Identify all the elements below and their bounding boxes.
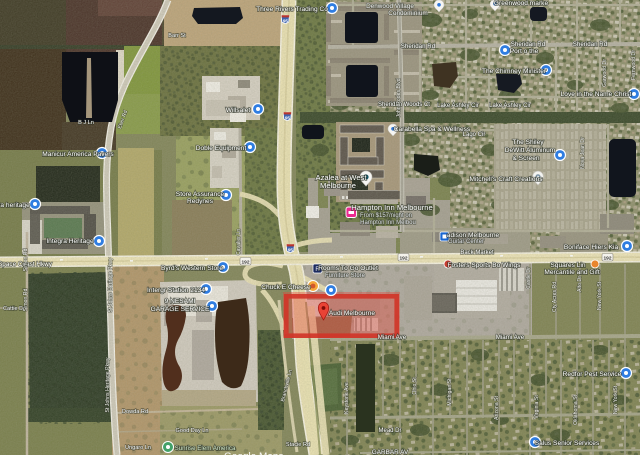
svg-text:Virginia St: Virginia St (534, 395, 540, 419)
svg-text:DeWitt Aluminum: DeWitt Aluminum (505, 147, 556, 154)
svg-text:Greenwood marke: Greenwood marke (494, 0, 549, 7)
svg-text:95: 95 (285, 115, 291, 120)
svg-text:192: 192 (241, 259, 249, 265)
svg-text:Hampton Inn Melbourne: Hampton Inn Melbourne (351, 203, 432, 212)
svg-text:Castle Dr: Castle Dr (526, 267, 532, 289)
svg-text:Arizona St: Arizona St (494, 395, 500, 419)
svg-text:Salus Senior Services: Salus Senior Services (535, 440, 600, 447)
svg-text:192: 192 (399, 255, 407, 261)
svg-text:Carabella Spa & Wellness: Carabella Spa & Wellness (394, 126, 471, 133)
svg-text:Ohio St: Ohio St (412, 377, 418, 395)
svg-text:Sheridan Rd: Sheridan Rd (401, 43, 436, 50)
svg-text:Sheridan Woods Ct: Sheridan Woods Ct (378, 102, 430, 108)
svg-text:Lake Ashley Cir: Lake Ashley Cir (437, 103, 479, 109)
svg-text:Google Maps: Google Maps (224, 452, 283, 455)
svg-text:St Johns Heritage Pkwy: St Johns Heritage Pkwy (105, 357, 111, 412)
svg-text:Nova Jean Dr: Nova Jean Dr (580, 137, 586, 169)
svg-text:Willsalet: Willsalet (226, 107, 251, 114)
svg-text:GARAGE SERVICE: GARAGE SERVICE (151, 306, 210, 313)
svg-text:Integra Heritage: Integra Heritage (46, 238, 94, 245)
svg-text:Ungaro Ln: Ungaro Ln (125, 445, 151, 451)
svg-text:Back Market: Back Market (460, 250, 494, 256)
svg-text:New York St: New York St (613, 385, 619, 414)
svg-text:Fernwood Dr: Fernwood Dr (631, 50, 637, 80)
svg-text:Audi Melbourne: Audi Melbourne (329, 310, 376, 317)
svg-text:Stacie Rd: Stacie Rd (286, 442, 310, 448)
svg-text:The Shiley: The Shiley (512, 139, 544, 146)
svg-text:Cattie Dr: Cattie Dr (3, 306, 25, 312)
svg-text:Keystone Ave: Keystone Ave (344, 382, 350, 414)
svg-text:St Johns Heritage Pkwy: St Johns Heritage Pkwy (108, 257, 114, 312)
svg-text:Mead Dr: Mead Dr (378, 428, 401, 434)
svg-text:Miami Ave: Miami Ave (378, 334, 407, 341)
svg-text:ra heritage: ra heritage (0, 202, 30, 209)
svg-text:GARBAR AV: GARBAR AV (372, 449, 409, 455)
svg-text:The Chimney Minister: The Chimney Minister (482, 68, 547, 75)
svg-text:Squares Lin: Squares Lin (550, 262, 586, 269)
svg-text:192: 192 (603, 255, 611, 261)
svg-text:Michigan St: Michigan St (447, 378, 453, 406)
svg-text:B J Ln: B J Ln (78, 120, 94, 126)
svg-text:Barr St: Barr St (168, 33, 186, 39)
svg-text:Hampton Inn Melbou: Hampton Inn Melbou (360, 220, 416, 226)
svg-text:adison Melbourne: adison Melbourne (447, 232, 500, 239)
svg-text:Fosters Sports Bo Wings: Fosters Sports Bo Wings (448, 262, 522, 269)
svg-text:Denwood Village: Denwood Village (366, 3, 414, 10)
svg-text:Lago Cir: Lago Cir (463, 132, 486, 138)
svg-text:Furniture Store: Furniture Store (325, 273, 366, 279)
svg-text:Port o the: Port o the (510, 48, 539, 55)
svg-text:Cty Acres Rd: Cty Acres Rd (552, 282, 558, 312)
svg-text:Manicur America Pavers: Manicur America Pavers (42, 151, 114, 158)
svg-text:Oklahoma St: Oklahoma St (573, 394, 579, 425)
svg-text:Intergr Station 2134: Intergr Station 2134 (147, 287, 205, 294)
svg-text:Good Day Ln: Good Day Ln (176, 428, 209, 434)
svg-text:Melbourne: Melbourne (320, 181, 356, 190)
svg-text:Dowda Rd: Dowda Rd (122, 409, 148, 415)
svg-text:Alto Dr: Alto Dr (577, 276, 583, 292)
svg-text:Simon Rd: Simon Rd (23, 288, 29, 311)
svg-text:Love in the Name Christ: Love in the Name Christ (561, 91, 632, 98)
svg-text:Sheridan Rd: Sheridan Rd (511, 41, 546, 48)
svg-text:Mitchell's Craft Creations: Mitchell's Craft Creations (469, 176, 543, 183)
svg-text:Redynes: Redynes (187, 198, 214, 205)
svg-text:Three Rivers Trading Co: Three Rivers Trading Co (256, 6, 328, 13)
svg-text:Byrd's Western Store: Byrd's Western Store (161, 265, 223, 272)
svg-text:95: 95 (283, 18, 289, 23)
svg-text:Chuck E Cheese: Chuck E Cheese (261, 284, 311, 291)
svg-text:Miami Ave: Miami Ave (496, 334, 525, 341)
svg-text:Condominium: Condominium (388, 10, 427, 17)
svg-text:Redfor Pest Service: Redfor Pest Service (563, 371, 622, 378)
svg-text:Boniface Hiers Kia: Boniface Hiers Kia (564, 244, 619, 251)
svg-text:New York St: New York St (597, 281, 603, 310)
svg-text:95: 95 (288, 247, 294, 252)
svg-text:From $157/night on: From $157/night on (360, 213, 412, 219)
svg-text:Cavalier Ln: Cavalier Ln (236, 229, 242, 255)
svg-text:Sheridan Rd: Sheridan Rd (573, 41, 608, 48)
svg-text:& Screen: & Screen (512, 155, 539, 162)
svg-text:John Rodes Blvd: John Rodes Blvd (396, 78, 402, 117)
svg-text:9 NESAMI: 9 NESAMI (165, 298, 196, 305)
svg-text:Rooms To Go Outlet: Rooms To Go Outlet (318, 265, 378, 272)
svg-text:Mercantile and Gift: Mercantile and Gift (544, 269, 600, 276)
svg-text:Guitar Center: Guitar Center (448, 239, 484, 245)
svg-text:Garwood Dr: Garwood Dr (602, 59, 608, 87)
svg-text:Lake Ashley Cir: Lake Ashley Cir (489, 103, 531, 109)
svg-text:Doble Equipment: Doble Equipment (196, 145, 247, 152)
svg-text:Simon Rd: Simon Rd (23, 248, 29, 271)
svg-text:Store Assurance: Store Assurance (176, 191, 225, 198)
